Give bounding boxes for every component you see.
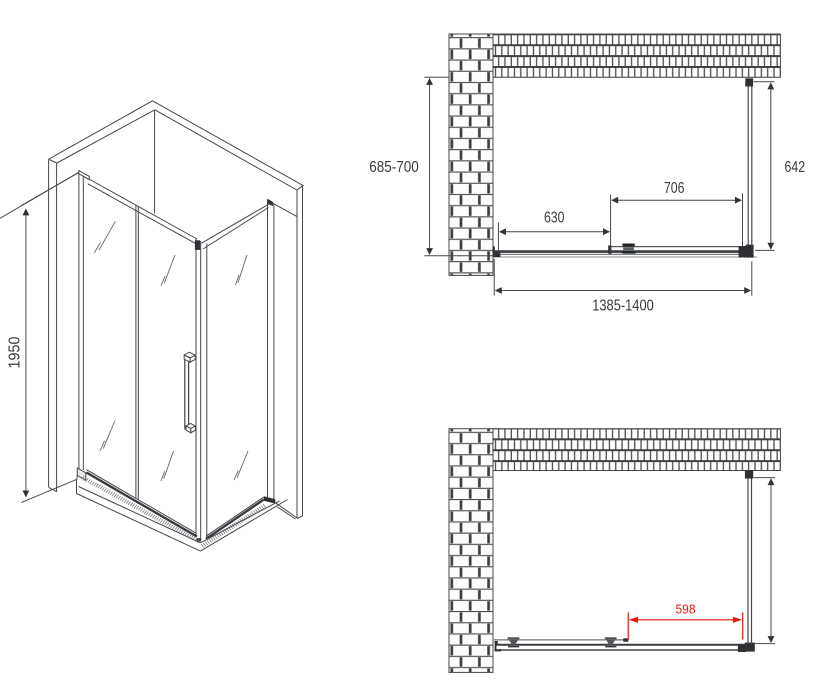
svg-text:598: 598 [676,602,696,617]
svg-text:706: 706 [664,180,685,197]
svg-text:630: 630 [544,209,565,226]
svg-text:1385-1400: 1385-1400 [592,297,654,314]
svg-text:1950: 1950 [7,336,24,368]
svg-text:642: 642 [785,159,806,176]
svg-text:685-700: 685-700 [369,159,419,176]
